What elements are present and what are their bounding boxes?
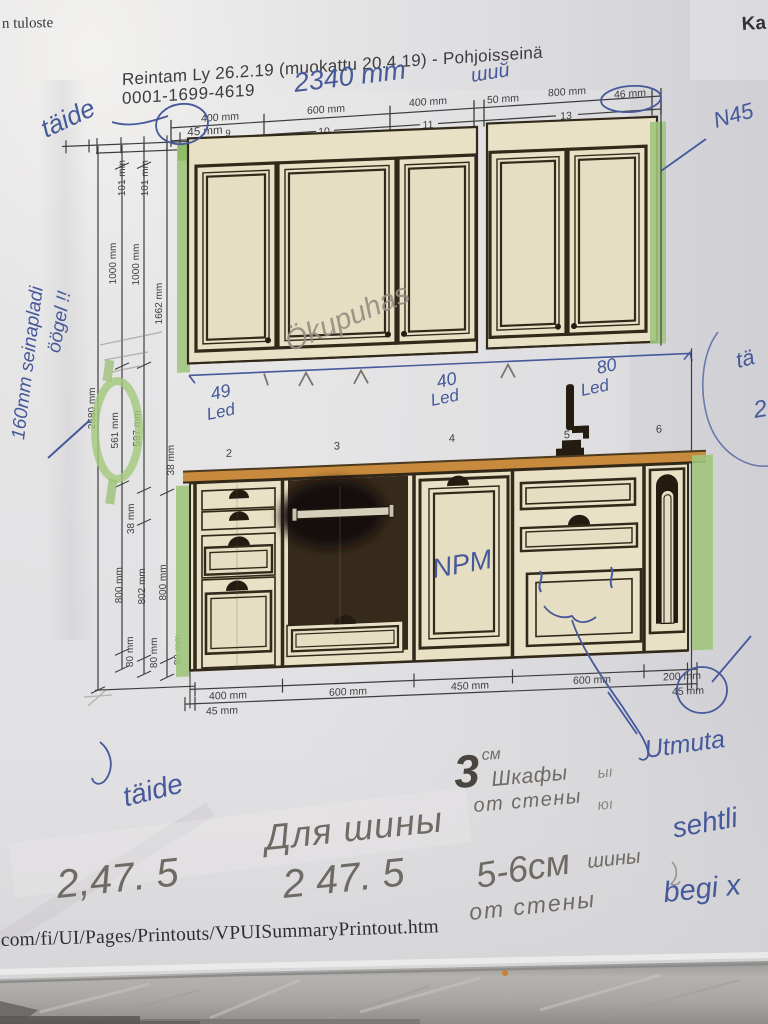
- svg-text:45 mm: 45 mm: [206, 704, 238, 717]
- svg-text:80 mm: 80 mm: [149, 637, 160, 668]
- svg-text:6: 6: [656, 424, 662, 436]
- svg-text:ыı: ыı: [597, 763, 614, 781]
- svg-text:4: 4: [449, 433, 455, 445]
- svg-text:38 mm: 38 mm: [166, 445, 177, 476]
- svg-text:561 mm: 561 mm: [110, 412, 121, 449]
- svg-text:600 mm: 600 mm: [307, 103, 345, 117]
- svg-text:1000 mm: 1000 mm: [131, 243, 142, 285]
- svg-text:5: 5: [564, 429, 570, 441]
- svg-text:50 mm: 50 mm: [487, 92, 519, 106]
- svg-text:80: 80: [595, 354, 619, 378]
- svg-text:101 mm: 101 mm: [117, 160, 128, 197]
- svg-text:101 mm: 101 mm: [140, 160, 151, 197]
- svg-text:400 mm: 400 mm: [409, 95, 447, 109]
- svg-text:400 mm: 400 mm: [209, 689, 247, 703]
- svg-text:802 mm: 802 mm: [137, 568, 148, 605]
- svg-text:n tuloste: n tuloste: [2, 15, 54, 32]
- svg-text:1662 mm: 1662 mm: [154, 283, 165, 325]
- svg-text:450 mm: 450 mm: [451, 679, 489, 693]
- svg-text:38 mm: 38 mm: [126, 503, 137, 534]
- svg-text:см: см: [481, 746, 501, 764]
- svg-text:800 mm: 800 mm: [114, 567, 125, 604]
- svg-text:3: 3: [452, 744, 482, 798]
- svg-text:Ka: Ka: [741, 13, 767, 35]
- svg-text:46 mm: 46 mm: [614, 87, 646, 101]
- svg-text:2: 2: [226, 448, 232, 460]
- svg-text:1000 mm: 1000 mm: [108, 242, 119, 284]
- svg-text:600 mm: 600 mm: [573, 674, 611, 688]
- svg-text:3: 3: [334, 440, 340, 452]
- svg-text:800 mm: 800 mm: [158, 564, 169, 601]
- svg-text:юı: юı: [597, 795, 614, 814]
- svg-text:80 mm: 80 mm: [125, 636, 136, 667]
- svg-text:800 mm: 800 mm: [548, 85, 586, 99]
